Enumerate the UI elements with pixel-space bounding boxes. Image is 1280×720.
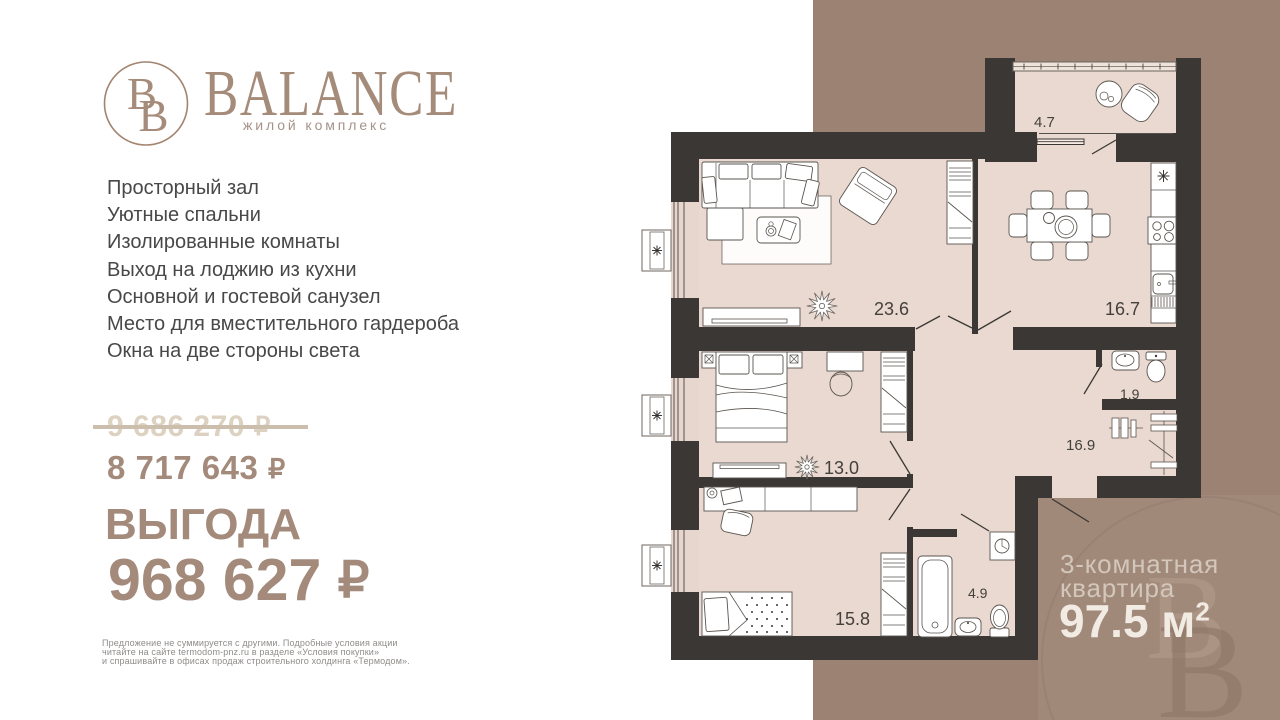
svg-text:13.0: 13.0 [824,458,859,478]
svg-text:4.9: 4.9 [968,585,988,601]
svg-text:1.9: 1.9 [1120,386,1140,402]
svg-text:4.7: 4.7 [1034,114,1055,131]
svg-text:23.6: 23.6 [874,299,909,319]
svg-text:15.8: 15.8 [835,609,870,629]
svg-text:16.9: 16.9 [1066,437,1095,454]
svg-text:16.7: 16.7 [1105,299,1140,319]
